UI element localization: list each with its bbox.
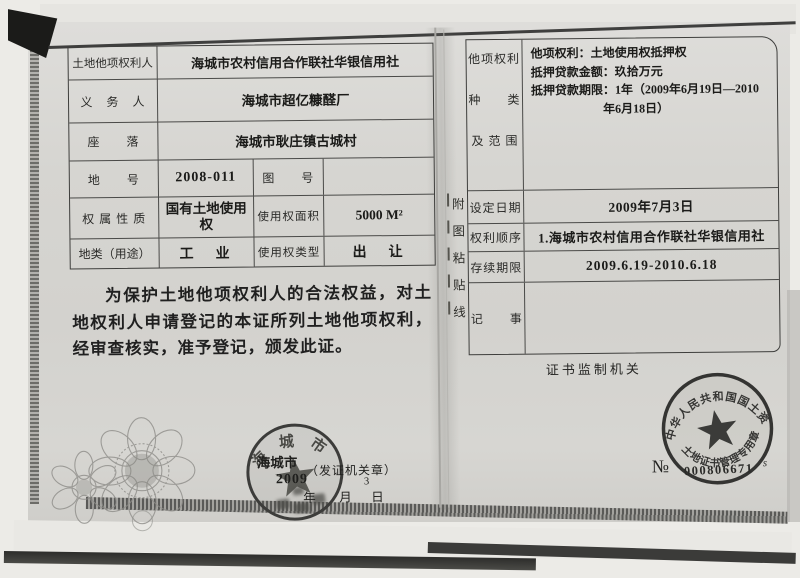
map-number-value [323, 158, 434, 195]
table-row: 座 落 海城市耿庄镇古城村 [69, 119, 433, 161]
rights-type-content: 他项权利：土地使用权抵押权 抵押贷款金额：玖拾万元 抵押贷款期限：1年（2009… [522, 37, 778, 190]
rights-type-label: 他项权利 种 类 及 范 围 [466, 40, 524, 191]
supervising-authority-label: 证书监制机关 [546, 358, 642, 378]
map-number-label: 图 号 [253, 159, 323, 196]
serial-mark: s [763, 457, 767, 469]
location-value: 海城市耿庄镇古城村 [157, 120, 433, 160]
table-row: 他项权利 种 类 及 范 围 他项权利：土地使用权抵押权 抵押贷款金额：玖拾万元… [466, 37, 778, 190]
land-use-label: 地类（用途） [70, 239, 158, 269]
notes-label: 记 事 [469, 283, 526, 355]
land-use-value: 工 业 [158, 238, 253, 268]
use-right-type-label: 使用权类型 [253, 237, 323, 267]
duration-label: 存续期限 [469, 252, 525, 283]
attachment-char: 粘 [453, 247, 466, 266]
use-area-label: 使用权面积 [253, 196, 323, 237]
table-row: 记 事 [469, 279, 780, 354]
tick-mark [447, 193, 449, 206]
rights-type-label-line: 他项权利 [468, 50, 520, 68]
obligor-value: 海城市超亿糠醛厂 [157, 77, 433, 122]
tick-mark [447, 220, 449, 233]
issuing-authority-label: （发证机关章） [306, 461, 397, 479]
issue-day: 3 [364, 476, 369, 487]
table-row: 权 属 性 质 国有土地使用权 使用权面积 5000 M² [70, 194, 434, 239]
rights-type-label-line: 种 类 [468, 91, 520, 109]
serial-number: 000806671 [684, 461, 754, 479]
year-char: 年 [303, 487, 316, 506]
tick-mark [448, 247, 450, 260]
table-row: 义 务 人 海城市超亿糠醛厂 [69, 76, 433, 123]
serial-prefix: № [652, 456, 669, 477]
table-row: 土地他项权利人 海城市农村信用合作联社华银信用社 [68, 44, 432, 80]
rights-order-label: 权利顺序 [468, 224, 524, 252]
guilloche-rosette [49, 408, 200, 545]
table-row: 存续期限 2009.6.19-2010.6.18 [469, 248, 779, 282]
rights-holder-label: 土地他项权利人 [68, 47, 156, 80]
ownership-nature-label: 权 属 性 质 [70, 198, 158, 239]
use-area-value: 5000 M² [323, 195, 434, 236]
duration-value: 2009.6.19-2010.6.18 [525, 249, 779, 282]
attachment-char: 线 [453, 301, 466, 320]
month-char: 月 [339, 487, 352, 506]
location-label: 座 落 [69, 123, 157, 161]
certificate-content: 土地他项权利人 海城市农村信用合作联社华银信用社 义 务 人 海城市超亿糠醛厂 … [0, 0, 800, 578]
use-right-type-value: 出 让 [323, 236, 434, 266]
setting-date-value: 2009年7月3日 [524, 188, 778, 223]
table-row: 权利顺序 1.海城市农村信用合作联社华银信用社 [468, 220, 778, 251]
tick-mark [448, 274, 450, 287]
attachment-paste-line: 附 图 粘 贴 线 [447, 193, 466, 328]
rights-order-value: 1.海城市农村信用合作联社华银信用社 [524, 221, 778, 251]
right-rights-table: 他项权利 种 类 及 范 围 他项权利：土地使用权抵押权 抵押贷款金额：玖拾万元… [465, 36, 780, 355]
obligor-label: 义 务 人 [69, 80, 157, 123]
attachment-char: 贴 [453, 274, 466, 293]
rosette-center [125, 454, 159, 488]
left-info-table: 土地他项权利人 海城市农村信用合作联社华银信用社 义 务 人 海城市超亿糠醛厂 … [67, 43, 435, 270]
rights-holder-value: 海城市农村信用合作联社华银信用社 [156, 44, 432, 79]
parcel-number-label: 地 号 [70, 161, 158, 198]
certificate-statement: 为保护土地他项权利人的合法权益，对土地权利人申请登记的本证所列土地他项权利，经审… [72, 280, 433, 364]
rights-type-label-line: 及 范 围 [471, 132, 518, 149]
tick-mark [448, 301, 450, 314]
attachment-char: 附 [452, 193, 465, 212]
setting-date-label: 设定日期 [468, 191, 524, 224]
ownership-nature-value: 国有土地使用权 [158, 197, 253, 238]
parcel-number-value: 2008-011 [158, 160, 253, 197]
day-char: 日 [371, 486, 384, 505]
notes-value [525, 280, 780, 354]
attachment-char: 图 [452, 220, 465, 239]
table-row: 地类（用途） 工 业 使用权类型 出 让 [70, 235, 434, 269]
table-row: 设定日期 2009年7月3日 [468, 187, 778, 223]
issue-year: 2009 [276, 472, 308, 488]
table-row: 地 号 2008-011 图 号 [70, 157, 434, 198]
issuing-city-text: 海城市 [257, 451, 298, 471]
